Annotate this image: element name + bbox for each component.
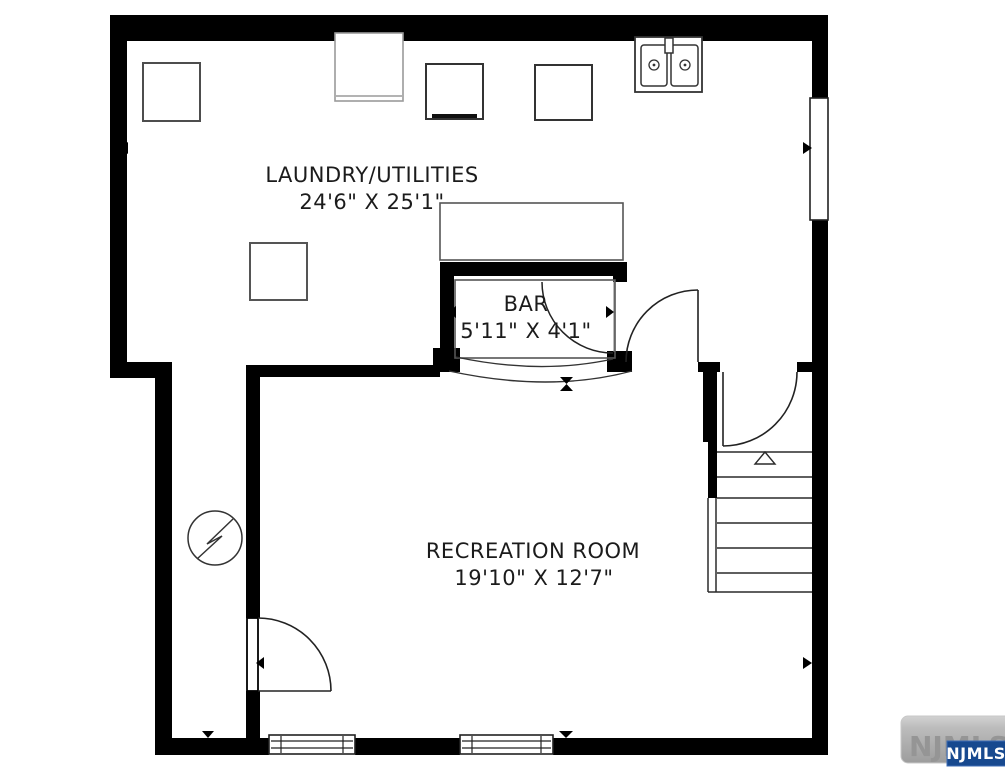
storage-square-icon (250, 243, 307, 300)
wall-stairs-left-thick (703, 362, 717, 442)
appliance-square-icon-2 (535, 65, 592, 120)
wall-bar-left-post (433, 348, 460, 372)
stairs-direction-triangle (755, 452, 775, 464)
laundry-room-dimensions: 24'6" X 25'1" (299, 190, 444, 214)
wall-bar-right-post (607, 351, 632, 372)
recreation-room-dimensions: 19'10" X 12'7" (454, 566, 613, 590)
door-swing-icon-upper-right (626, 290, 698, 362)
double-sink-icon (635, 37, 702, 92)
wall-divider-horizontal (246, 365, 440, 377)
dimension-arrow-icon-bottom-left (202, 731, 214, 738)
dimension-arrow-icon-bar-bottom-up (560, 384, 573, 391)
wall-right-upper (812, 41, 828, 98)
wall-bar-top (440, 262, 627, 276)
bar-dimensions: 5'11" X 4'1" (460, 319, 591, 343)
wall-top (110, 15, 828, 41)
watermark-badge-text: NJMLS (946, 744, 1005, 763)
electrical-panel-icon (188, 511, 242, 565)
recreation-room-label: RECREATION ROOM (426, 539, 640, 563)
wall-stairs-left-half (708, 442, 717, 498)
window-icon-bottom-left (269, 735, 355, 754)
stair-treads (717, 452, 812, 573)
dryer-icon (426, 64, 483, 119)
door-swing-icon-stairs (723, 372, 797, 446)
dimension-arrow-icon-right-lower (803, 657, 812, 669)
stair-railing (708, 498, 812, 592)
appliance-square-icon (143, 63, 200, 121)
floor-plan-page: LAUNDRY/UTILITIES 24'6" X 25'1" BAR 5'11… (0, 0, 1005, 768)
counter-icon (440, 203, 623, 260)
bar-label: BAR (504, 292, 549, 316)
watermark: NJMLS NJMLS (901, 716, 1005, 766)
wall-bottom-right (553, 738, 828, 755)
wall-left-step (110, 362, 172, 378)
stairs-icon (708, 452, 812, 592)
floor-plan-drawing: LAUNDRY/UTILITIES 24'6" X 25'1" BAR 5'11… (0, 0, 1005, 768)
wall-left-upper (110, 41, 127, 378)
laundry-room-label: LAUNDRY/UTILITIES (265, 163, 478, 187)
dimension-arrow-icon-bottom-mid (559, 731, 573, 738)
door-swing-icon-rec-room (247, 618, 331, 691)
washer-icon (335, 33, 403, 101)
window-icon-bottom-mid (460, 735, 553, 754)
window-icon-right (810, 98, 828, 220)
dimension-arrow-icon-bar-right (606, 306, 614, 318)
wall-bottom-mid (355, 738, 460, 755)
wall-stair-door-right (797, 362, 813, 372)
bar-pass-through-curve-lower (449, 371, 632, 382)
wall-bar-right-upper (613, 262, 627, 282)
outer-walls (110, 15, 828, 755)
wall-bottom-left (155, 738, 269, 755)
wall-hallway-vertical (246, 365, 260, 618)
wall-hallway-vertical-lower (246, 691, 260, 738)
wall-right-lower (812, 220, 828, 753)
wall-left-lower (155, 378, 172, 755)
